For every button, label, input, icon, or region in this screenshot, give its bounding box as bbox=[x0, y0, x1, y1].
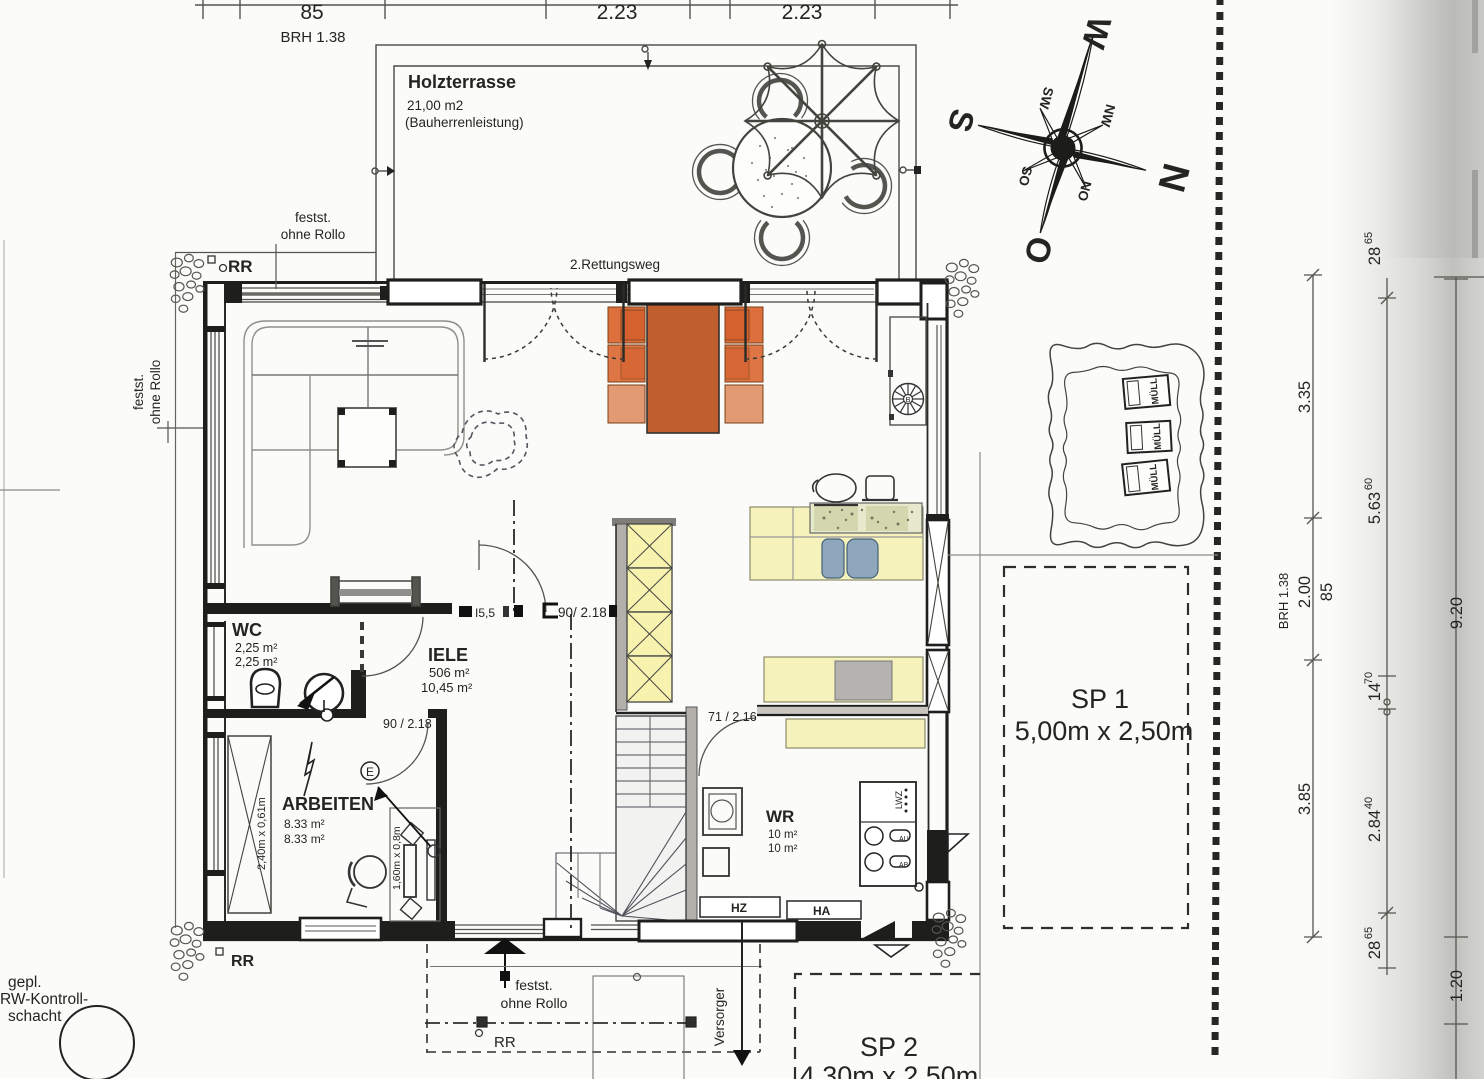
svg-text:IELE: IELE bbox=[428, 645, 468, 665]
svg-text:B: B bbox=[905, 395, 910, 404]
svg-text:WR: WR bbox=[766, 807, 794, 826]
svg-text:RR: RR bbox=[494, 1034, 516, 1051]
svg-text:21,00 m2: 21,00 m2 bbox=[407, 98, 463, 113]
svg-text:10,45 m²: 10,45 m² bbox=[421, 680, 473, 695]
svg-text:2,25 m²: 2,25 m² bbox=[235, 655, 277, 669]
svg-text:14: 14 bbox=[1366, 683, 1384, 701]
svg-text:2.Rettungsweg: 2.Rettungsweg bbox=[570, 257, 660, 272]
svg-text:10 m²: 10 m² bbox=[768, 843, 798, 855]
svg-text:70: 70 bbox=[1363, 672, 1375, 684]
svg-text:10 m²: 10 m² bbox=[768, 829, 798, 841]
svg-text:festst.: festst. bbox=[295, 210, 331, 225]
svg-text:4,30m x 2,50m: 4,30m x 2,50m bbox=[800, 1061, 979, 1079]
svg-text:28: 28 bbox=[1366, 941, 1384, 959]
svg-text:5,00m x 2,50m: 5,00m x 2,50m bbox=[1015, 716, 1194, 746]
svg-text:65: 65 bbox=[1363, 927, 1375, 939]
svg-text:HA: HA bbox=[813, 904, 831, 918]
svg-text:90/ 2.18: 90/ 2.18 bbox=[558, 605, 607, 620]
svg-text:RW-Kontroll-: RW-Kontroll- bbox=[0, 991, 88, 1008]
svg-text:festst.: festst. bbox=[131, 374, 146, 410]
svg-text:AU: AU bbox=[899, 836, 909, 843]
svg-text:I5,5: I5,5 bbox=[475, 606, 495, 620]
svg-text:SP 2: SP 2 bbox=[860, 1032, 918, 1062]
svg-text:2,25 m²: 2,25 m² bbox=[235, 641, 277, 655]
svg-text:(Bauherrenleistung): (Bauherrenleistung) bbox=[405, 115, 524, 130]
svg-text:85: 85 bbox=[1318, 583, 1336, 601]
svg-text:3.85: 3.85 bbox=[1296, 783, 1314, 815]
svg-text:festst.: festst. bbox=[515, 977, 552, 993]
svg-text:gepl.: gepl. bbox=[8, 974, 42, 991]
svg-text:1.20: 1.20 bbox=[1448, 970, 1466, 1002]
svg-text:AB: AB bbox=[899, 862, 909, 869]
svg-text:2.84: 2.84 bbox=[1366, 810, 1384, 842]
svg-text:2,40m x 0,61m: 2,40m x 0,61m bbox=[256, 797, 268, 870]
svg-text:8.33 m²: 8.33 m² bbox=[284, 832, 325, 846]
svg-text:9.20: 9.20 bbox=[1448, 597, 1466, 629]
svg-text:506 m²: 506 m² bbox=[429, 665, 470, 680]
svg-text:65: 65 bbox=[1363, 232, 1375, 244]
svg-text:85: 85 bbox=[300, 1, 323, 24]
svg-text:28: 28 bbox=[1366, 247, 1384, 265]
svg-text:MÜLL: MÜLL bbox=[1152, 423, 1164, 450]
svg-text:3.35: 3.35 bbox=[1296, 381, 1314, 413]
svg-text:BRH 1.38: BRH 1.38 bbox=[1276, 573, 1291, 629]
svg-text:71 / 2.16: 71 / 2.16 bbox=[708, 710, 757, 724]
svg-text:60: 60 bbox=[1363, 478, 1375, 490]
svg-text:Holzterrasse: Holzterrasse bbox=[408, 72, 516, 92]
svg-text:ohne Rollo: ohne Rollo bbox=[281, 227, 346, 242]
svg-text:40: 40 bbox=[1363, 797, 1375, 809]
svg-text:MÜLL: MÜLL bbox=[1148, 377, 1161, 404]
svg-text:schacht: schacht bbox=[8, 1008, 62, 1025]
svg-text:RR: RR bbox=[231, 953, 255, 970]
svg-text:ohne Rollo: ohne Rollo bbox=[148, 360, 163, 425]
svg-text:ARBEITEN: ARBEITEN bbox=[282, 794, 374, 814]
svg-text:2.23: 2.23 bbox=[782, 1, 823, 24]
svg-text:HZ: HZ bbox=[731, 901, 747, 915]
svg-text:WC: WC bbox=[232, 620, 262, 640]
svg-text:Versorger: Versorger bbox=[712, 987, 727, 1046]
svg-text:E: E bbox=[366, 765, 374, 779]
svg-text:2.23: 2.23 bbox=[597, 1, 638, 24]
svg-text:5.63: 5.63 bbox=[1366, 492, 1384, 524]
svg-text:ohne Rollo: ohne Rollo bbox=[501, 995, 568, 1011]
svg-text:BRH 1.38: BRH 1.38 bbox=[280, 29, 345, 46]
svg-text:SP 1: SP 1 bbox=[1071, 684, 1129, 714]
svg-text:RR: RR bbox=[228, 257, 253, 276]
svg-text:90 / 2.18: 90 / 2.18 bbox=[383, 717, 432, 731]
svg-text:2.00: 2.00 bbox=[1296, 576, 1314, 608]
svg-text:8.33 m²: 8.33 m² bbox=[284, 817, 325, 831]
svg-text:LWZ: LWZ bbox=[894, 790, 904, 809]
